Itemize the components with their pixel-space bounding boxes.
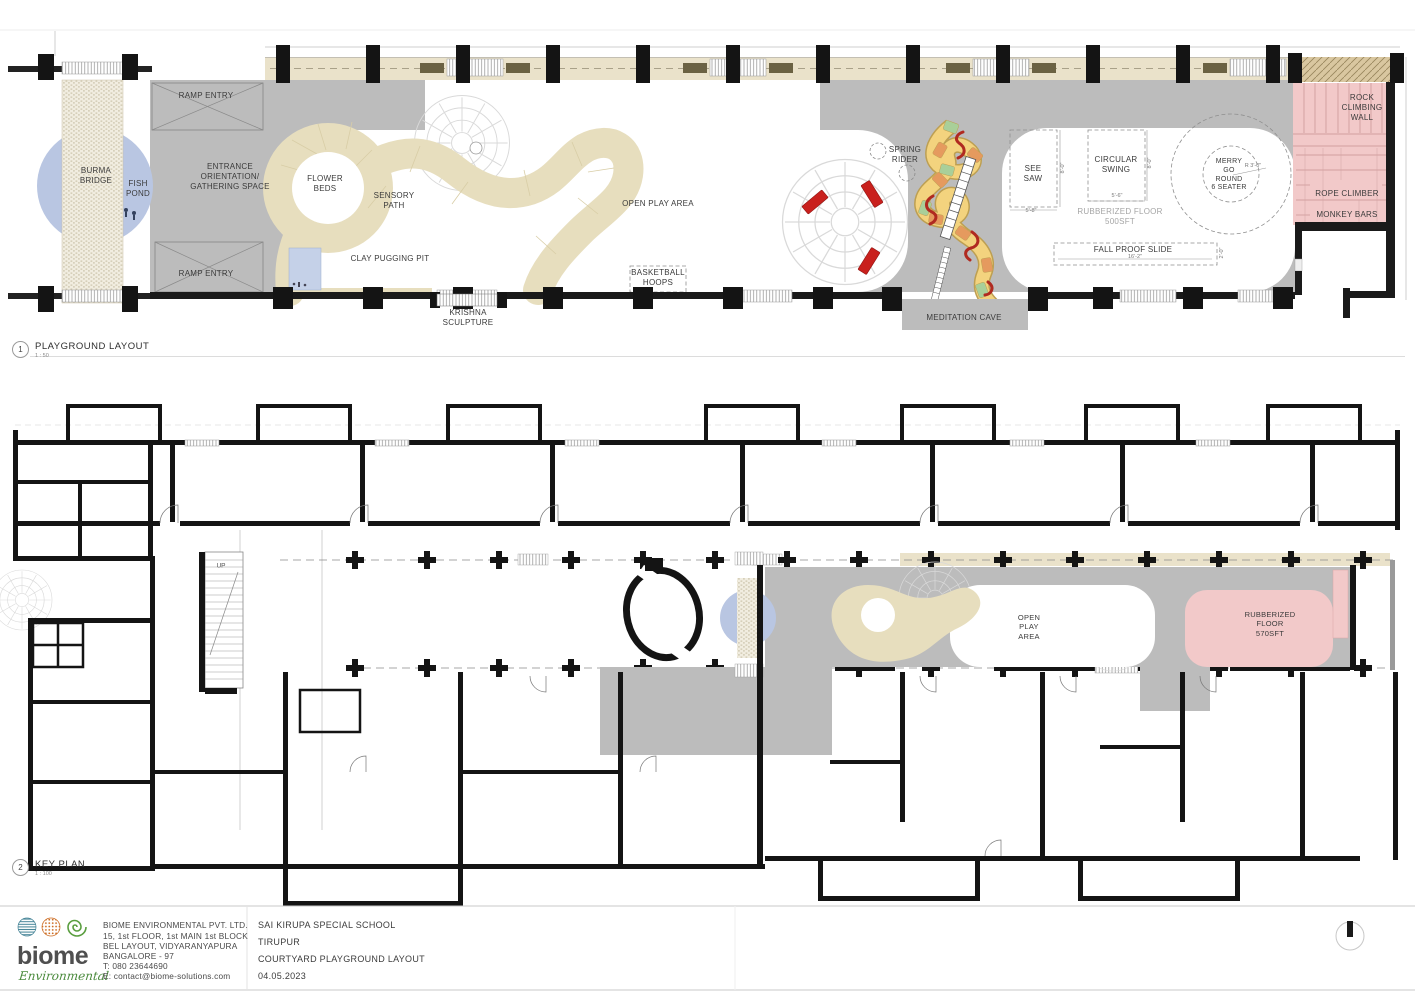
drawing1-scale: 1 : 50 [35, 353, 149, 359]
company-address3: BANGALORE - 97 [103, 951, 174, 961]
label-rope-climber: ROPE CLIMBER [1315, 189, 1378, 199]
logo-icon-water [18, 918, 36, 936]
label-basketball-hoops: BASKETBALL HOOPS [631, 268, 685, 288]
dim-merry-go-round-radius: R 3'-0" [1245, 163, 1261, 169]
dim-see-saw-height: 8'-0" [1060, 163, 1066, 174]
dim-fall-proof-slide-width: 2'-0" [1219, 248, 1225, 259]
drawing1-title: PLAYGROUND LAYOUT [35, 341, 149, 352]
drawing-sheet: BURMA BRIDGE FISH POND RAMP ENTRY ENTRAN… [0, 0, 1415, 1000]
label-kp-rubberized-floor: RUBBERIZED FLOOR 570SFT [1245, 610, 1296, 638]
label-rubberized-floor-500: RUBBERIZED FLOOR 500SFT [1077, 207, 1162, 227]
company-address2: BEL LAYOUT, VIDYARANYAPURA [103, 941, 237, 951]
label-fish-pond: FISH POND [126, 179, 150, 199]
project-location: TIRUPUR [258, 937, 300, 947]
label-open-play-area: OPEN PLAY AREA [622, 199, 694, 209]
label-ramp-entry-top: RAMP ENTRY [179, 91, 234, 101]
drawing1-underline [30, 356, 1405, 357]
staircase [199, 552, 243, 694]
company-email: E: contact@biome-solutions.com [103, 971, 230, 981]
dim-circular-swing-width: 5'-6" [1112, 193, 1123, 199]
verandah-hatched-band [1295, 57, 1400, 82]
label-meditation-cave: MEDITATION CAVE [926, 313, 1001, 323]
label-kp-open-play-area: OPEN PLAY AREA [1018, 613, 1040, 641]
label-burma-bridge: BURMA BRIDGE [80, 166, 112, 186]
label-ramp-entry-bottom: RAMP ENTRY [179, 269, 234, 279]
project-client: SAI KIRUPA SPECIAL SCHOOL [258, 920, 396, 930]
bottom-wing-rooms [33, 623, 360, 732]
company-address1: 15, 1st FLOOR, 1st MAIN 1st BLOCK [103, 931, 248, 941]
project-sheet-title: COURTYARD PLAYGROUND LAYOUT [258, 954, 425, 964]
amphitheater-oval [617, 558, 708, 665]
label-see-saw: SEE SAW [1024, 164, 1043, 184]
logo-icon-sun [42, 918, 60, 936]
label-circular-swing: CIRCULAR SWING [1095, 155, 1138, 175]
drawing2-scale: 1 : 100 [35, 871, 85, 877]
label-sensory-path: SENSORY PATH [374, 191, 415, 211]
company-name: BIOME ENVIRONMENTAL PVT. LTD. [103, 920, 248, 930]
dim-fall-proof-slide-length: 16'-2" [1128, 254, 1142, 260]
company-phone: T: 080 23644690 [103, 961, 168, 971]
drawing2-callout: 2 KEY PLAN 1 : 100 [12, 859, 85, 877]
drawing2-number: 2 [12, 859, 29, 876]
logo-icon-spiral [68, 921, 86, 937]
label-monkey-bars: MONKEY BARS [1316, 210, 1377, 220]
label-merry-go-round: MERRY GO ROUND 6 SEATER [1211, 158, 1246, 193]
label-krishna-sculpture: KRISHNA SCULPTURE [443, 308, 494, 328]
plan-linework [0, 0, 1415, 1000]
dim-see-saw-width: 5'-8" [1026, 208, 1037, 214]
label-spring-rider: SPRING RIDER [889, 145, 921, 165]
north-arrow-icon [1336, 921, 1364, 950]
logo-tagline: Environmental [18, 969, 109, 983]
label-flower-beds: FLOWER BEDS [307, 174, 343, 194]
drawing1-callout: 1 PLAYGROUND LAYOUT 1 : 50 [12, 341, 149, 359]
project-date: 04.05.2023 [258, 971, 306, 981]
key-plan [0, 406, 1400, 906]
logo-wordmark: biome [17, 944, 88, 969]
label-stair-up: UP [216, 563, 225, 570]
verandah [265, 45, 1404, 83]
drawing2-title: KEY PLAN [35, 859, 85, 870]
dim-circular-swing-height: 8'-0" [1147, 158, 1153, 169]
label-clay-pugging-pit: CLAY PUGGING PIT [351, 254, 430, 264]
label-rock-climbing-wall: ROCK CLIMBING WALL [1342, 93, 1383, 123]
clay-pit-pool [289, 248, 321, 290]
label-entrance: ENTRANCE ORIENTATION/ GATHERING SPACE [190, 162, 269, 192]
drawing1-number: 1 [12, 341, 29, 358]
